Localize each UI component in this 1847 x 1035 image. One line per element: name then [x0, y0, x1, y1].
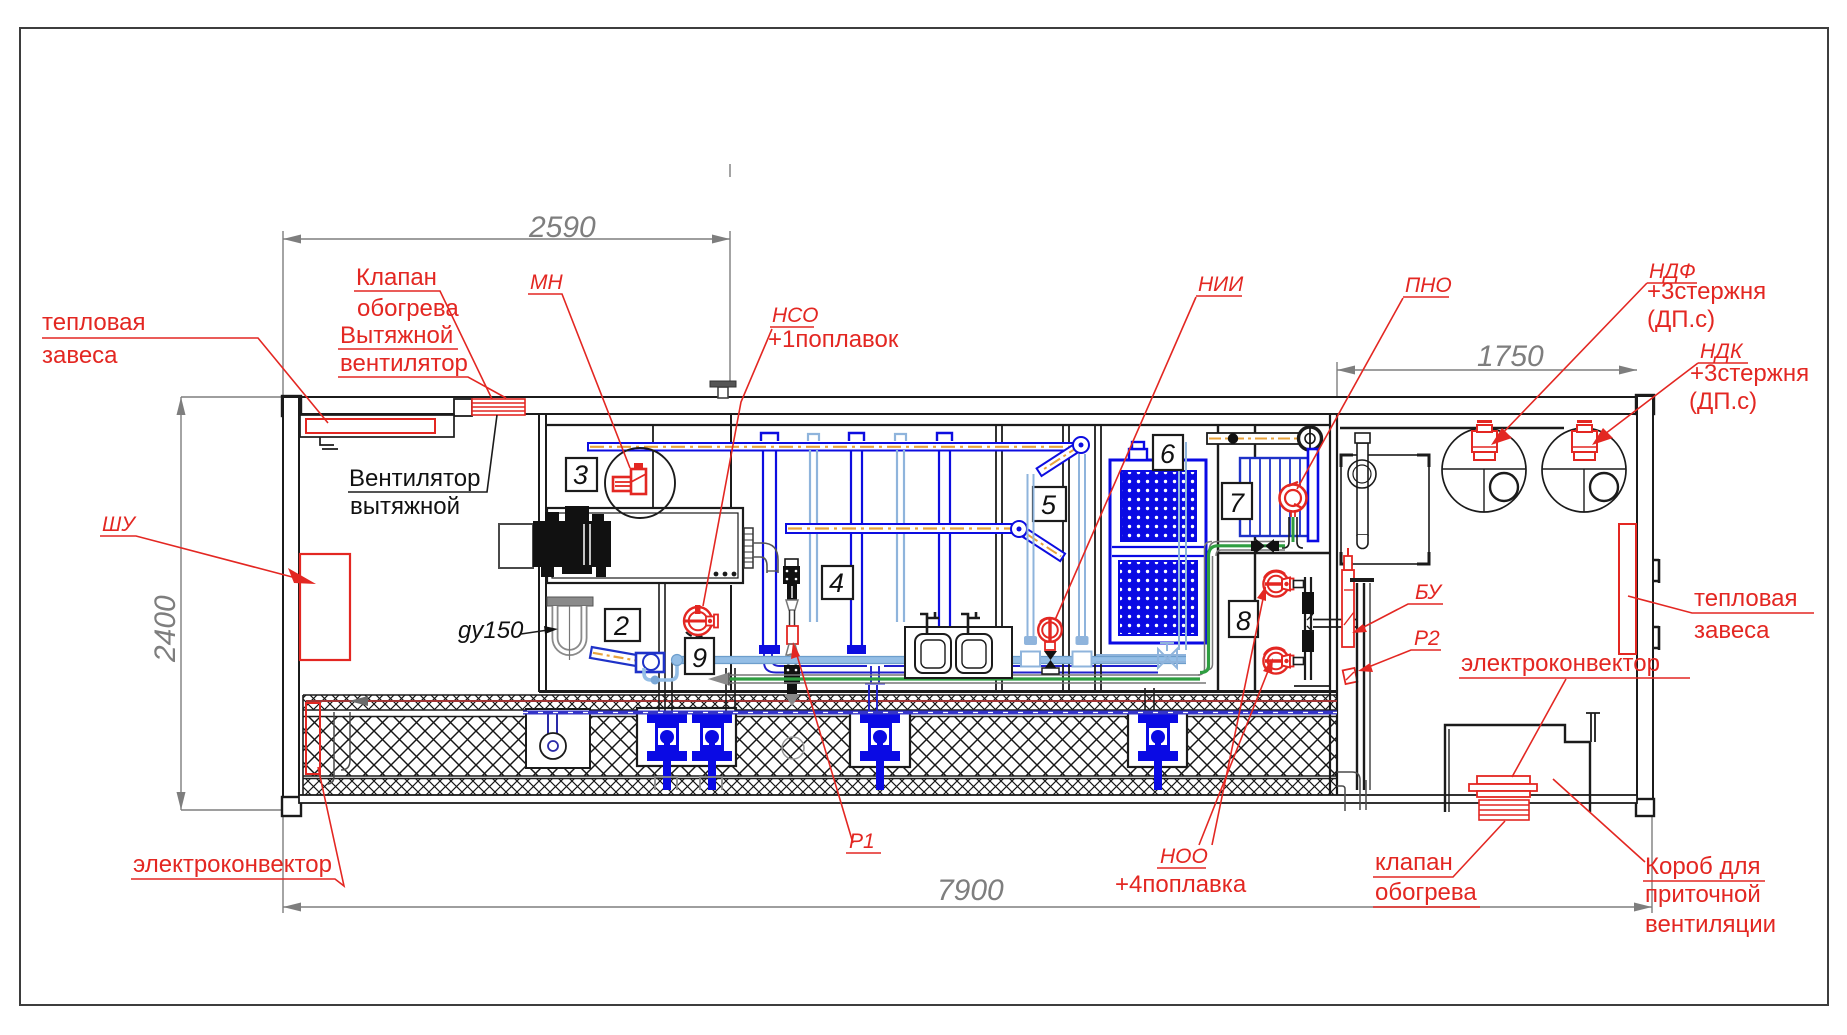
svg-text:2590: 2590	[528, 211, 596, 244]
svg-text:вентилятор: вентилятор	[340, 350, 468, 377]
svg-text:тепловая: тепловая	[42, 309, 146, 336]
svg-text:завеса: завеса	[1694, 617, 1770, 644]
svg-text:завеса: завеса	[42, 342, 118, 369]
svg-text:вытяжной: вытяжной	[350, 493, 460, 520]
svg-text:Короб для: Короб для	[1645, 853, 1760, 880]
svg-text:(ДП.с): (ДП.с)	[1647, 306, 1715, 333]
svg-text:БУ: БУ	[1415, 581, 1443, 604]
svg-text:8: 8	[1236, 606, 1251, 636]
svg-text:(ДП.с): (ДП.с)	[1689, 388, 1757, 415]
svg-text:+1поплавок: +1поплавок	[768, 326, 899, 353]
svg-text:клапан: клапан	[1375, 849, 1453, 876]
svg-text:5: 5	[1041, 490, 1057, 520]
svg-text:электроконвектор: электроконвектор	[1461, 650, 1660, 677]
svg-text:Вентилятор: Вентилятор	[349, 465, 480, 492]
svg-text:+3стержня: +3стержня	[1690, 360, 1809, 387]
svg-text:ПНО: ПНО	[1405, 274, 1452, 297]
svg-text:7: 7	[1229, 488, 1245, 518]
svg-text:Клапан: Клапан	[356, 264, 437, 291]
svg-text:gy150: gy150	[458, 617, 524, 644]
svg-text:обогрева: обогрева	[1375, 879, 1477, 906]
svg-text:Вытяжной: Вытяжной	[340, 322, 453, 349]
svg-text:2400: 2400	[149, 595, 182, 663]
svg-text:+3стержня: +3стержня	[1647, 278, 1766, 305]
svg-text:электроконвектор: электроконвектор	[133, 851, 332, 878]
svg-text:4: 4	[829, 568, 844, 598]
svg-text:7900: 7900	[937, 874, 1004, 907]
svg-text:3: 3	[573, 460, 588, 490]
svg-text:ШУ: ШУ	[102, 513, 137, 536]
svg-text:2: 2	[613, 611, 629, 641]
svg-text:МН: МН	[530, 271, 563, 294]
svg-text:1750: 1750	[1477, 340, 1544, 373]
svg-text:6: 6	[1160, 439, 1176, 469]
svg-text:+4поплавка: +4поплавка	[1115, 871, 1247, 898]
svg-text:НИИ: НИИ	[1198, 273, 1244, 296]
svg-text:Р2: Р2	[1414, 627, 1440, 650]
svg-text:вентиляции: вентиляции	[1645, 911, 1776, 938]
svg-text:приточной: приточной	[1645, 881, 1761, 908]
svg-text:НСО: НСО	[772, 304, 818, 327]
svg-text:9: 9	[692, 643, 707, 673]
svg-text:тепловая: тепловая	[1694, 585, 1798, 612]
svg-text:НОО: НОО	[1160, 845, 1208, 868]
